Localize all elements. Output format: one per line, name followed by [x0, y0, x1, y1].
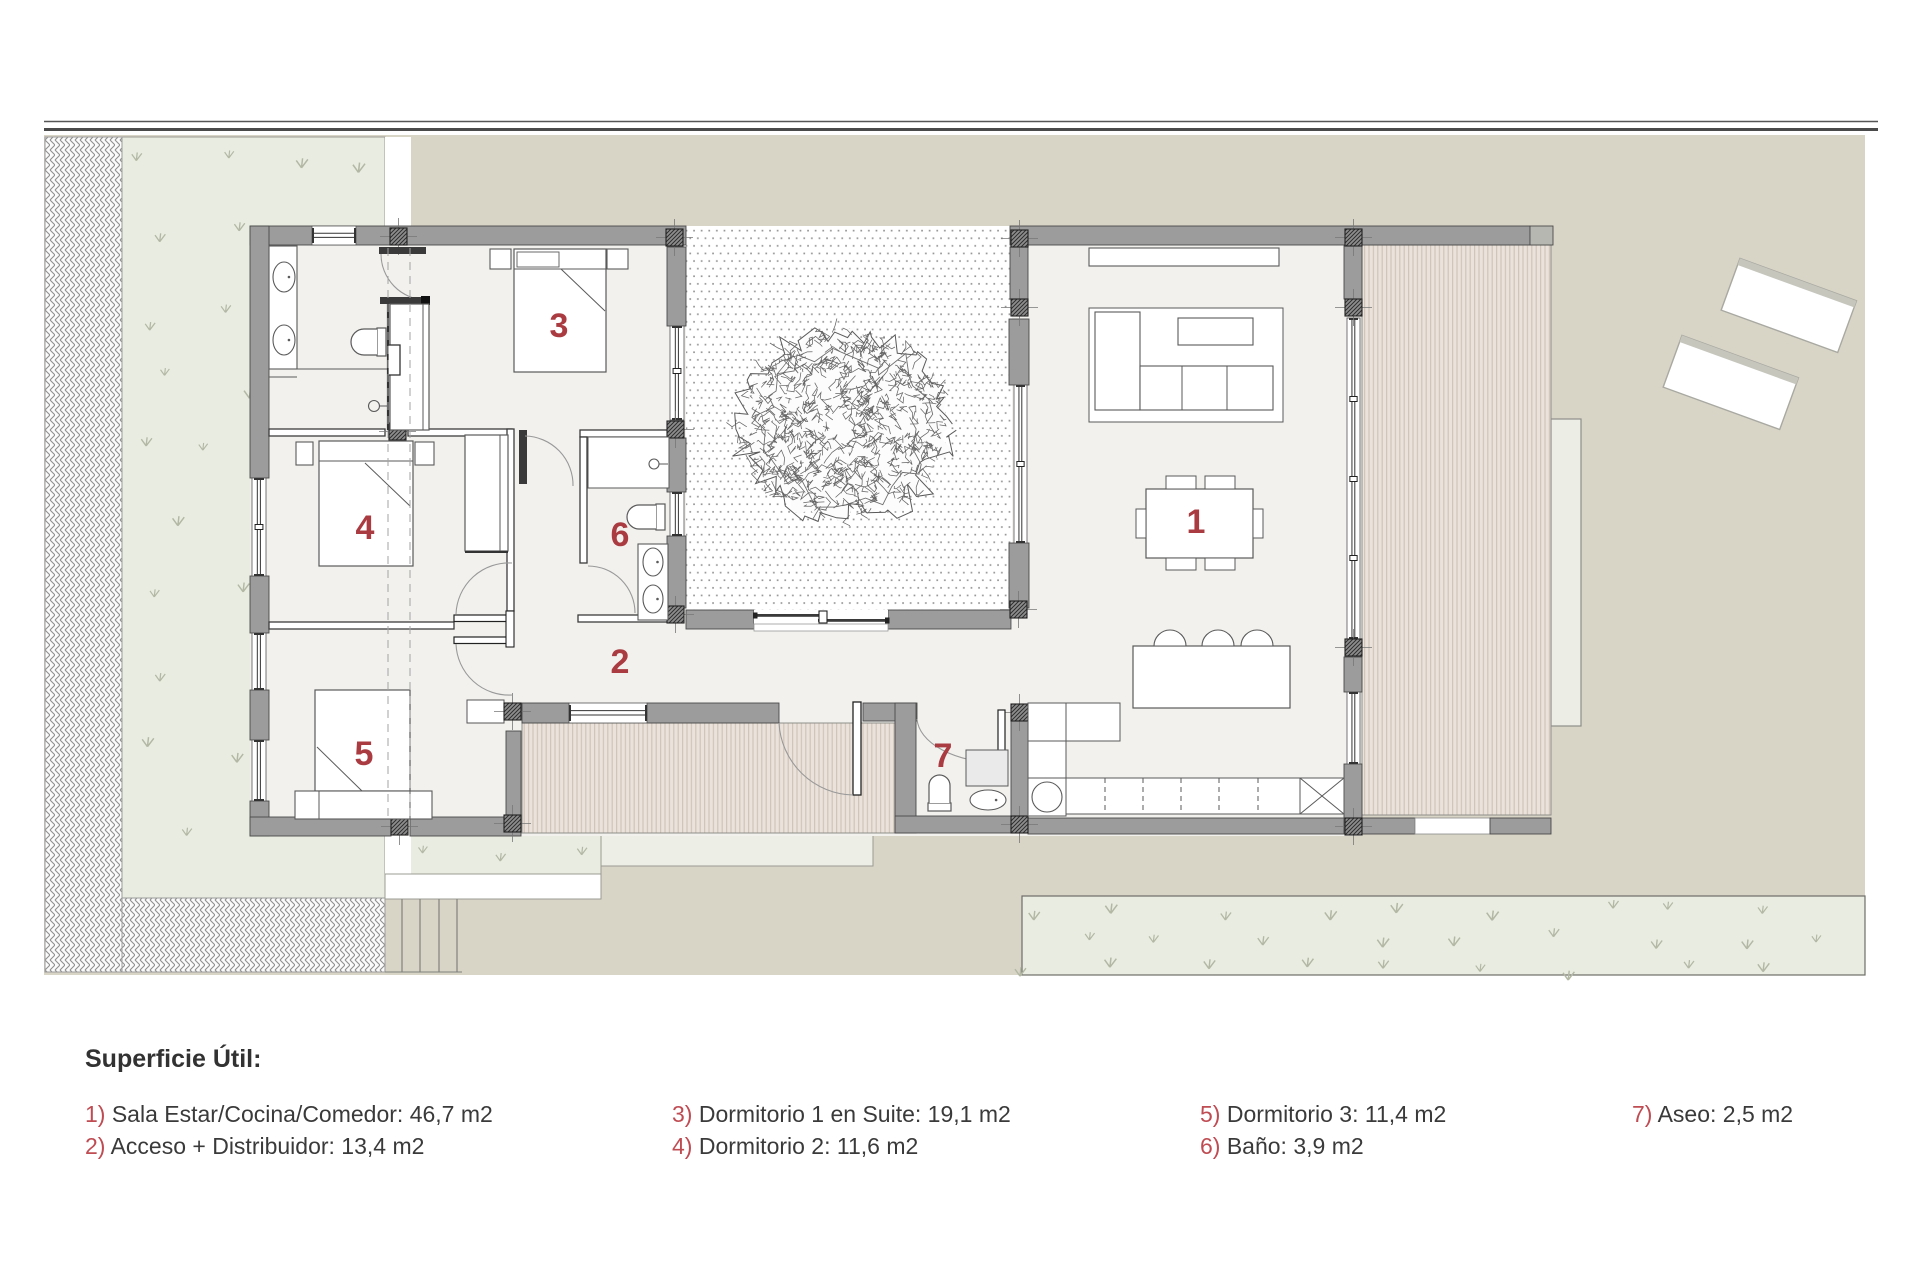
svg-text:1: 1: [1187, 503, 1206, 541]
svg-text:6: 6: [611, 516, 630, 554]
svg-text:7) Aseo: 2,5 m2: 7) Aseo: 2,5 m2: [1632, 1101, 1793, 1127]
svg-text:4: 4: [356, 509, 375, 547]
svg-text:2) Acceso + Distribuidor: 13,4: 2) Acceso + Distribuidor: 13,4 m2: [85, 1133, 424, 1159]
svg-text:5: 5: [355, 735, 374, 773]
svg-text:2: 2: [611, 643, 630, 681]
svg-text:4) Dormitorio 2: 11,6 m2: 4) Dormitorio 2: 11,6 m2: [672, 1133, 918, 1159]
svg-text:1) Sala Estar/Cocina/Comedor:: 1) Sala Estar/Cocina/Comedor: 46,7 m2: [85, 1101, 493, 1127]
svg-text:3) Dormitorio 1 en Suite: 19,1: 3) Dormitorio 1 en Suite: 19,1 m2: [672, 1101, 1011, 1127]
svg-text:7: 7: [934, 737, 953, 775]
svg-text:3: 3: [550, 307, 569, 345]
svg-text:Superficie Útil:: Superficie Útil:: [85, 1043, 261, 1073]
svg-text:5) Dormitorio 3: 11,4 m2: 5) Dormitorio 3: 11,4 m2: [1200, 1101, 1446, 1127]
svg-text:6) Baño: 3,9 m2: 6) Baño: 3,9 m2: [1200, 1133, 1364, 1159]
